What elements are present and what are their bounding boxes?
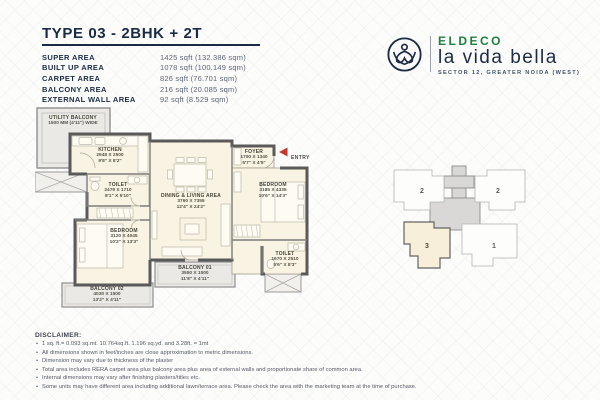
stat-label: BALCONY AREA — [42, 85, 160, 94]
key-plan-drawing: 2 2 3 1 — [392, 152, 527, 282]
disclaimer-title: DISCLAIMER: — [35, 332, 590, 339]
stat-row: SUPER AREA 1425 sqft (132.386 sqm) — [42, 52, 342, 63]
stat-label: EXTERNAL WALL AREA — [42, 95, 160, 104]
stat-row: BUILT UP AREA 1078 sqft (100.149 sqm) — [42, 63, 342, 74]
disclaimer-line: All dimensions shown in feet/inches are … — [35, 349, 590, 358]
keyplan-unit-2a: 2 — [420, 188, 424, 195]
brand-block: ELDECO la vida bella SECTOR 12, GREATER … — [386, 35, 580, 76]
key-plan: 2 2 3 1 — [392, 152, 527, 282]
stat-value: 92 sqft (8.529 sqm) — [160, 95, 228, 104]
keyplan-unit-2b: 2 — [496, 188, 500, 195]
brochure-page: TYPE 03 - 2BHK + 2T SUPER AREA 1425 sqft… — [0, 0, 600, 400]
area-stats: SUPER AREA 1425 sqft (132.386 sqm) BUILT… — [42, 52, 342, 105]
eldeco-flower-logo-icon — [386, 36, 423, 73]
brand-name: ELDECO — [438, 35, 580, 47]
stat-label: SUPER AREA — [42, 53, 160, 62]
floor-plan: UTILITY BALCONY 1500 MM (4'11") WIDE KIT… — [35, 106, 335, 316]
stat-value: 1078 sqft (100.149 sqm) — [160, 63, 246, 72]
floor-plan-drawing — [35, 106, 335, 316]
stat-value: 826 sqft (76.701 sqm) — [160, 74, 237, 83]
stat-row: CARPET AREA 826 sqft (76.701 sqm) — [42, 73, 342, 84]
stat-label: CARPET AREA — [42, 74, 160, 83]
title-underline — [42, 44, 260, 46]
disclaimer-line: Internal dimensions may vary after finis… — [35, 374, 590, 383]
stat-value: 1425 sqft (132.386 sqm) — [160, 53, 246, 62]
brand-project: la vida bella — [438, 48, 580, 68]
stat-row: EXTERNAL WALL AREA 92 sqft (8.529 sqm) — [42, 94, 342, 105]
disclaimer-line: 1 sq. ft.= 0.093 sq.mt. 10.764sq.ft. 1.1… — [35, 340, 590, 349]
keyplan-unit-1: 1 — [492, 243, 496, 250]
page-title: TYPE 03 - 2BHK + 2T — [42, 25, 202, 42]
brand-location: SECTOR 12, GREATER NOIDA (WEST) — [438, 70, 580, 76]
brand-text: ELDECO la vida bella SECTOR 12, GREATER … — [438, 35, 580, 76]
stat-value: 216 sqft (20.085 sqm) — [160, 85, 237, 94]
entry-label: ENTRY — [291, 155, 310, 161]
disclaimer-line: Dimension may vary due to thickness of t… — [35, 357, 590, 366]
disclaimer-line: Total area includes RERA carpet area plu… — [35, 366, 590, 375]
stat-label: BUILT UP AREA — [42, 63, 160, 72]
brand-divider — [430, 36, 431, 72]
disclaimer: DISCLAIMER: 1 sq. ft.= 0.093 sq.mt. 10.7… — [35, 332, 590, 392]
disclaimer-line: Some units may have different area inclu… — [35, 383, 472, 392]
stat-row: BALCONY AREA 216 sqft (20.085 sqm) — [42, 84, 342, 95]
keyplan-unit-3-highlighted: 3 — [425, 243, 429, 250]
